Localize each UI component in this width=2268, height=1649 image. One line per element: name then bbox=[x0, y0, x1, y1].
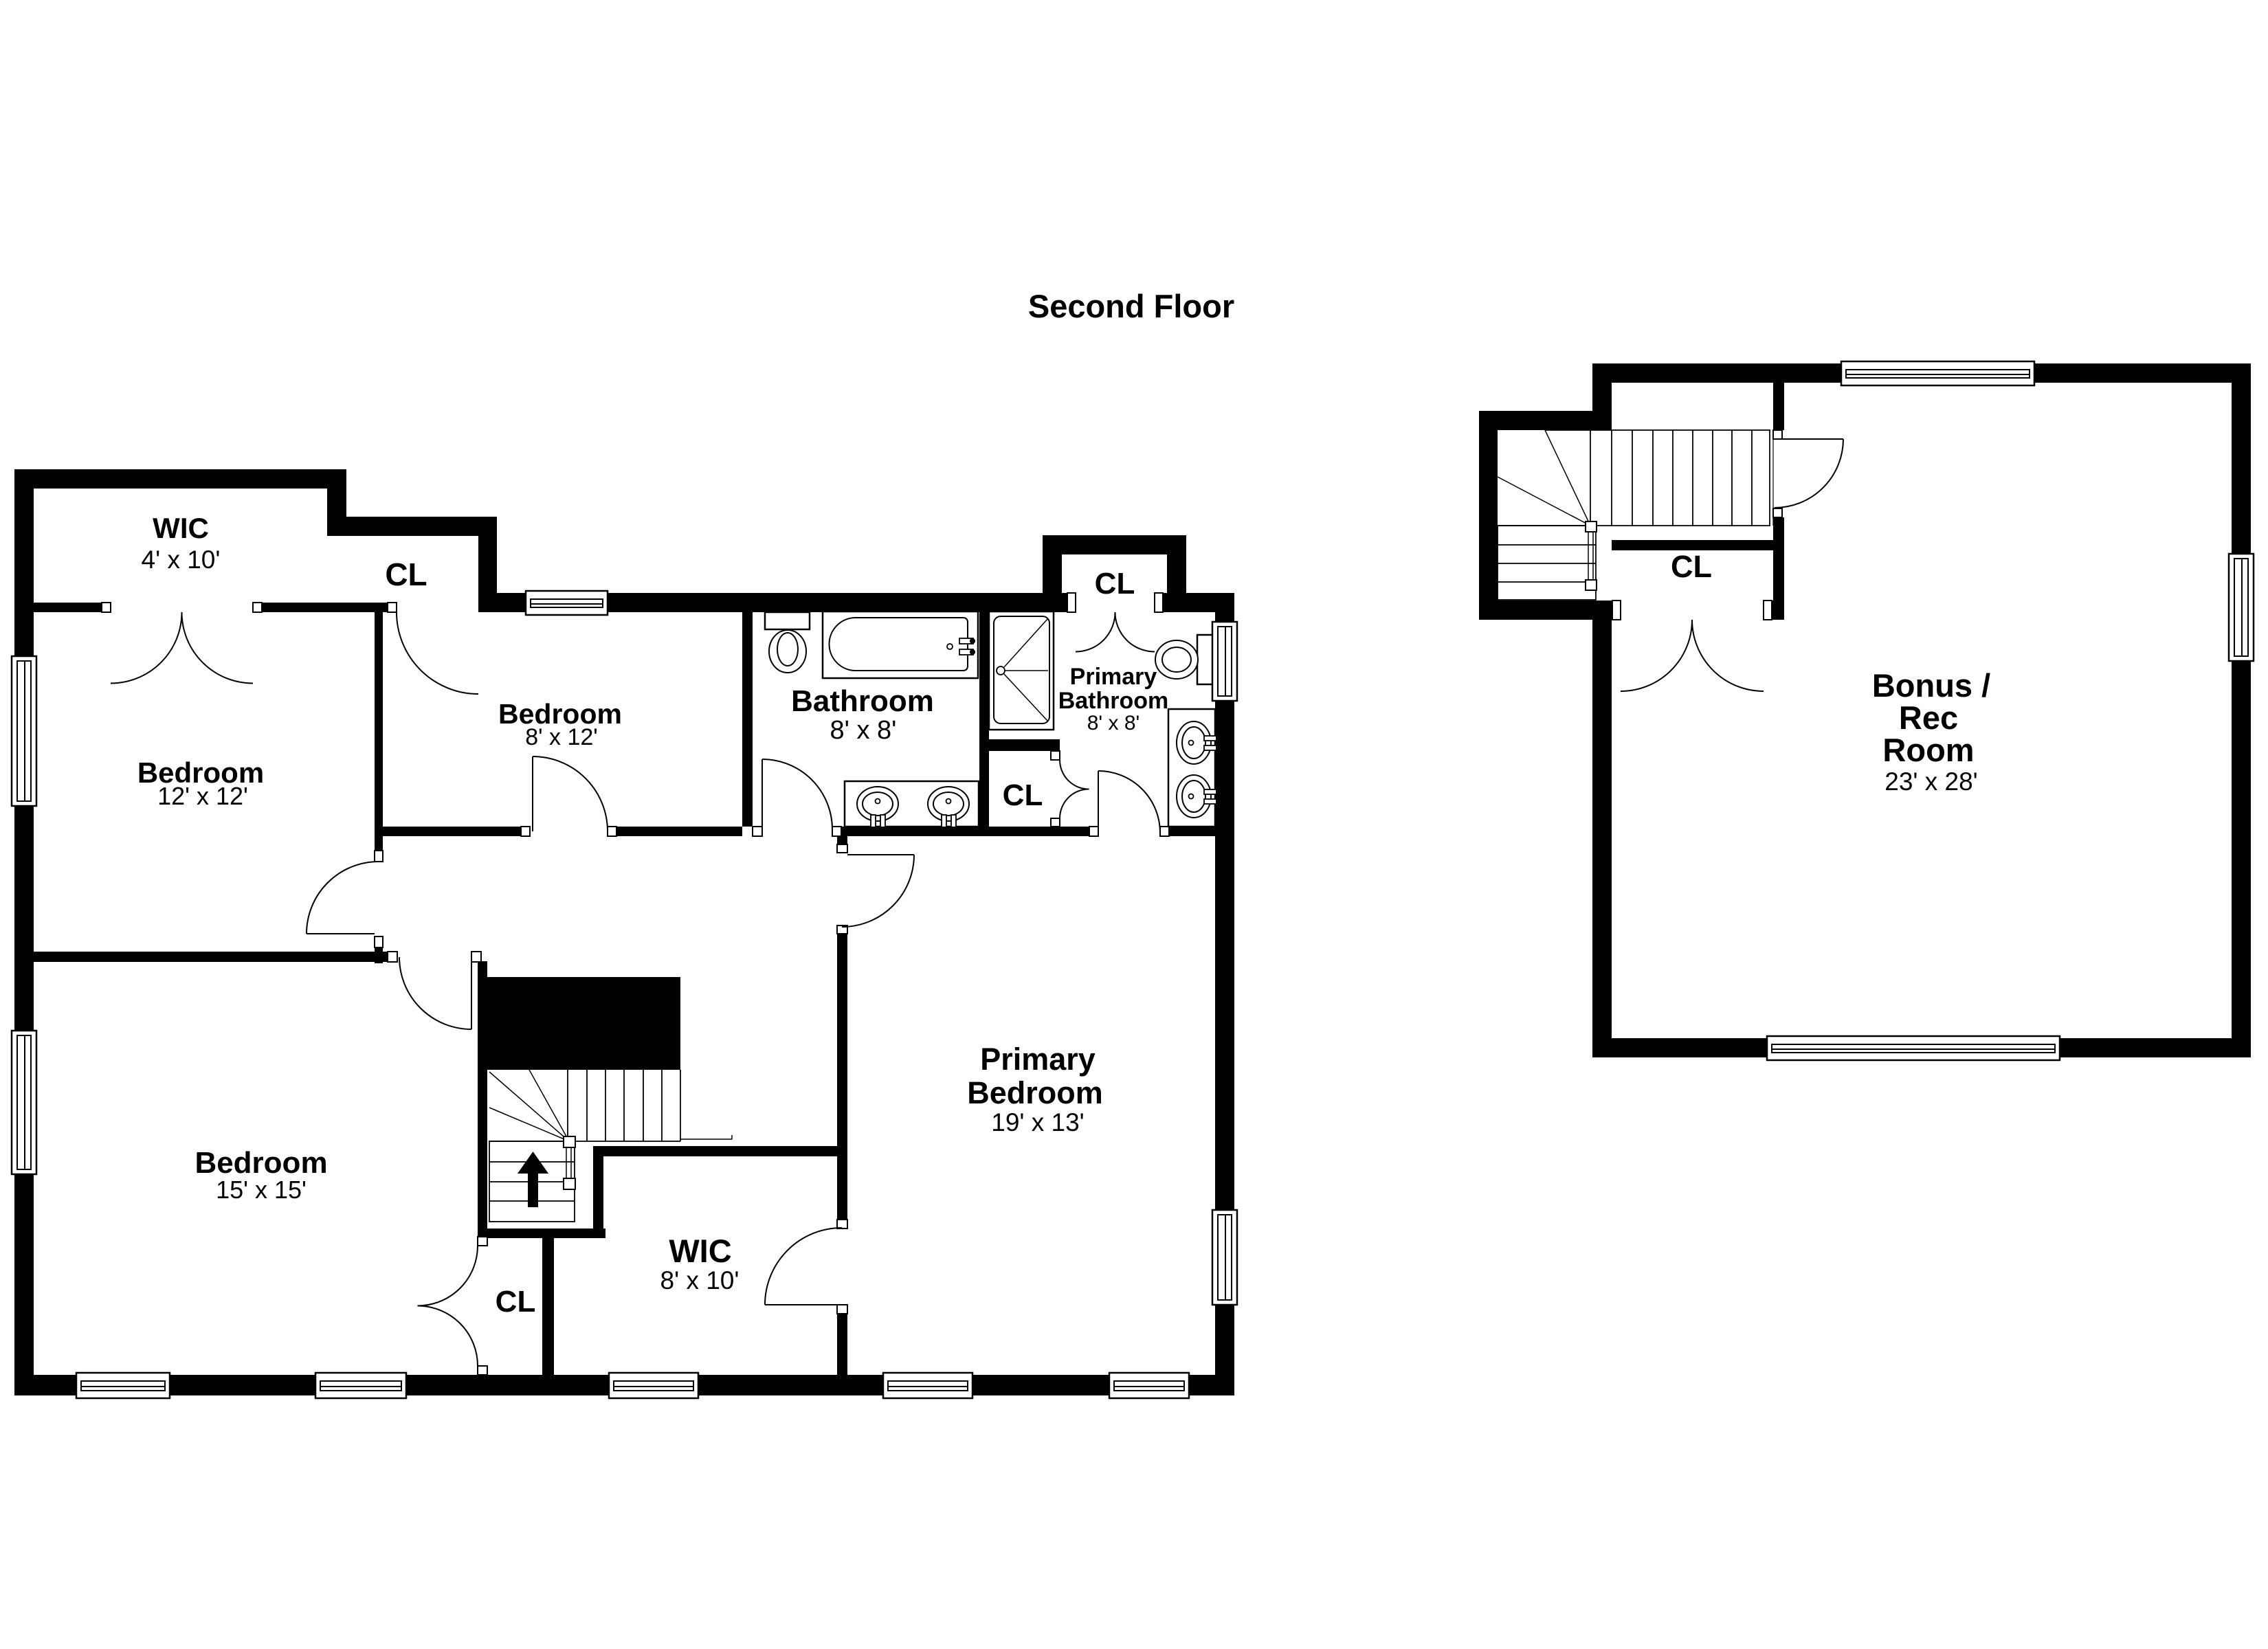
svg-text:15' x 15': 15' x 15' bbox=[216, 1176, 307, 1204]
svg-text:Room: Room bbox=[1882, 732, 1974, 768]
svg-text:Primary: Primary bbox=[980, 1042, 1096, 1077]
svg-text:Bathroom: Bathroom bbox=[791, 684, 934, 718]
svg-text:Bonus /: Bonus / bbox=[1872, 667, 1990, 704]
svg-text:CL: CL bbox=[496, 1285, 536, 1319]
svg-text:Bedroom: Bedroom bbox=[194, 1146, 327, 1180]
svg-text:8' x 10': 8' x 10' bbox=[660, 1266, 740, 1294]
svg-text:Bedroom: Bedroom bbox=[967, 1075, 1103, 1110]
svg-text:8' x 8': 8' x 8' bbox=[1087, 712, 1140, 734]
svg-text:8' x 8': 8' x 8' bbox=[830, 716, 897, 745]
svg-text:CL: CL bbox=[385, 557, 427, 592]
svg-text:Rec: Rec bbox=[1899, 699, 1958, 736]
svg-text:Second Floor: Second Floor bbox=[1028, 288, 1234, 324]
svg-text:4' x 10': 4' x 10' bbox=[142, 546, 221, 574]
svg-text:WIC: WIC bbox=[669, 1233, 731, 1269]
svg-text:CL: CL bbox=[1095, 567, 1135, 601]
svg-text:WIC: WIC bbox=[153, 512, 209, 544]
svg-text:CL: CL bbox=[1003, 778, 1043, 812]
svg-text:12' x 12': 12' x 12' bbox=[157, 782, 248, 810]
svg-text:19' x 13': 19' x 13' bbox=[991, 1108, 1085, 1136]
svg-text:8' x 12': 8' x 12' bbox=[525, 724, 598, 750]
svg-text:Bathroom: Bathroom bbox=[1058, 688, 1169, 714]
svg-text:CL: CL bbox=[1671, 549, 1712, 584]
svg-text:23' x 28': 23' x 28' bbox=[1885, 767, 1978, 796]
svg-text:Primary: Primary bbox=[1070, 664, 1157, 690]
